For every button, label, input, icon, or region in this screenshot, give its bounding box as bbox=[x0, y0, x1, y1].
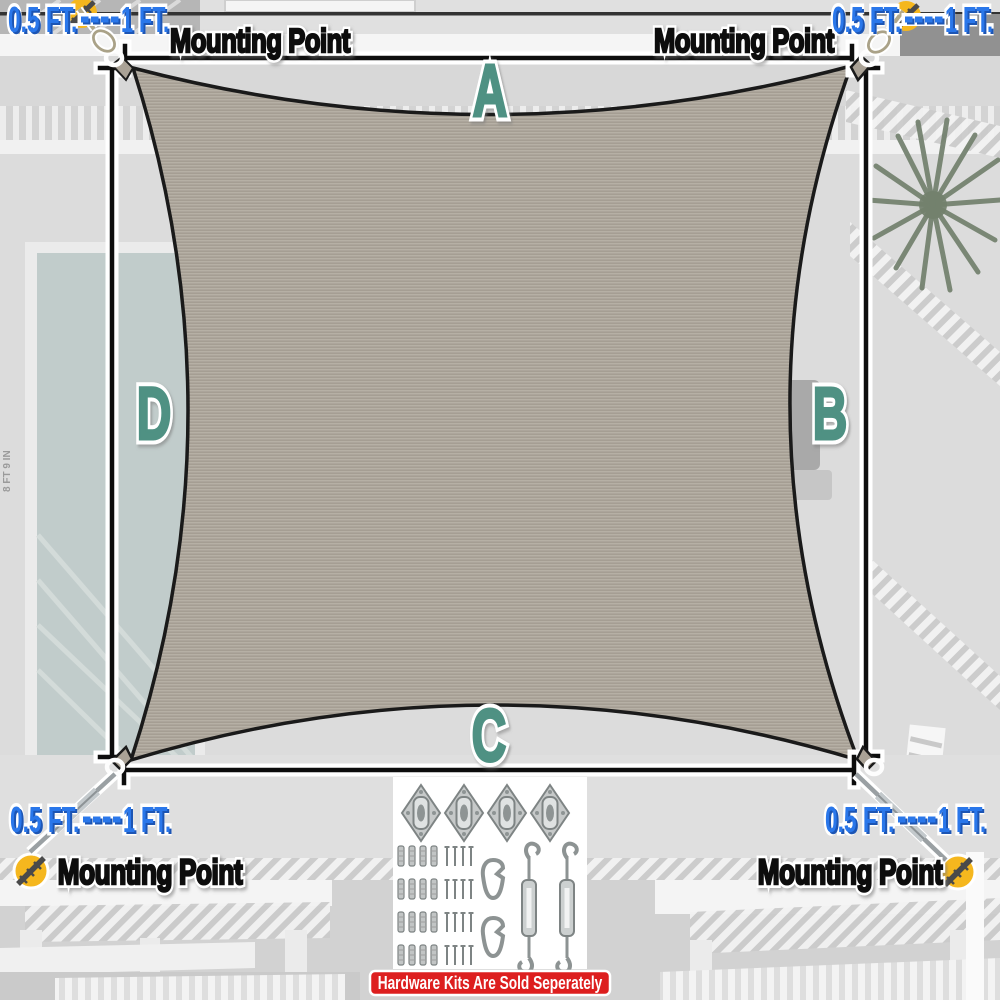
svg-text:8 FT 9 IN: 8 FT 9 IN bbox=[2, 450, 13, 492]
svg-text:Hardware Kits Are Sold Seperat: Hardware Kits Are Sold Seperately bbox=[378, 973, 603, 993]
